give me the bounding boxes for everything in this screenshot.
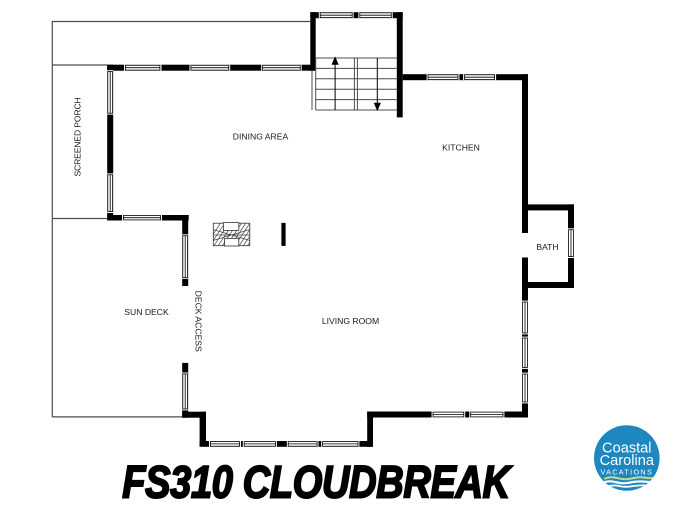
svg-text:VACATIONS: VACATIONS (600, 467, 653, 476)
svg-text:DECK ACCESS: DECK ACCESS (193, 291, 203, 352)
svg-text:FS310 CLOUDBREAK: FS310 CLOUDBREAK (122, 456, 512, 507)
svg-text:KITCHEN: KITCHEN (442, 143, 480, 153)
svg-text:SCREENED PORCH: SCREENED PORCH (72, 97, 82, 176)
svg-text:DINING AREA: DINING AREA (233, 132, 289, 142)
svg-text:BATH: BATH (536, 242, 558, 252)
svg-text:Carolina: Carolina (600, 453, 655, 469)
svg-text:LIVING ROOM: LIVING ROOM (322, 316, 379, 326)
svg-text:SUN DECK: SUN DECK (124, 307, 169, 317)
